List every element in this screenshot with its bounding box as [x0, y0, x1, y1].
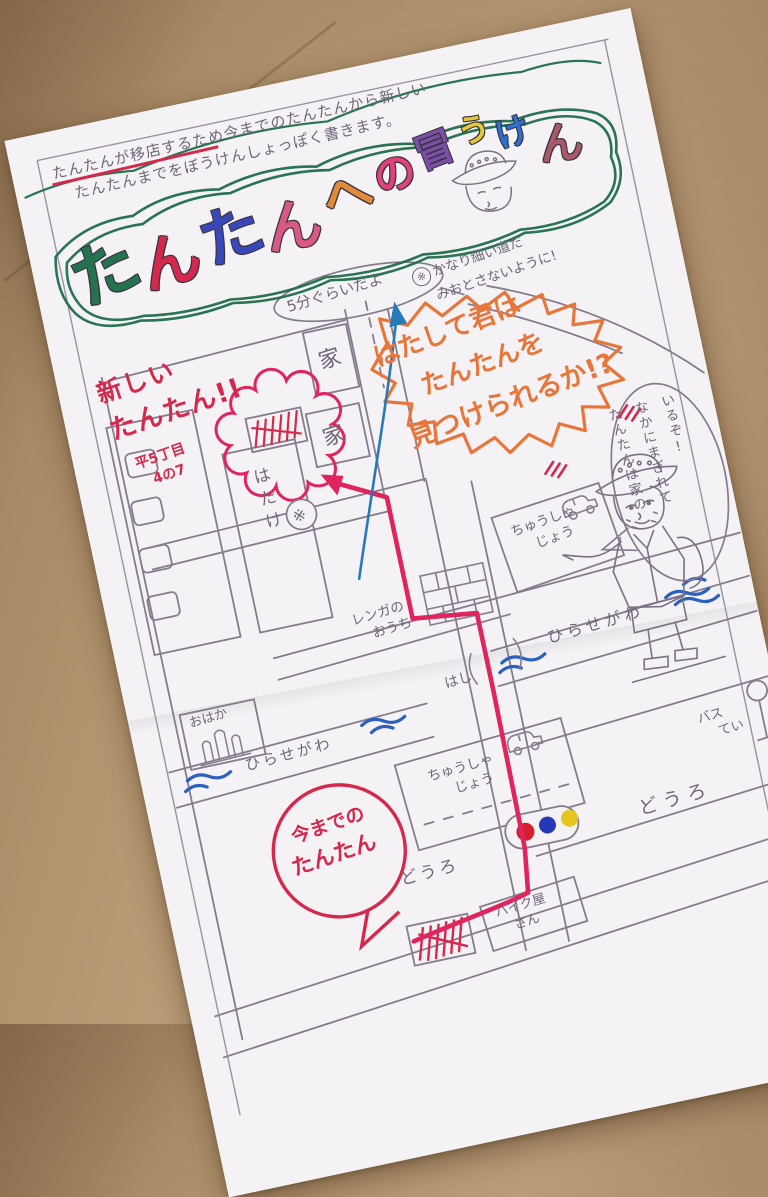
paper-sheet: たんたんが移店するため今までのたんたんから新しい たんたんまでをぼうけんしょっぽ… [4, 8, 768, 1197]
title-letter: ん [535, 105, 586, 174]
photo-of-hand-drawn-map: { "colors": { "cardboard": "#b2946f", "p… [0, 0, 768, 1024]
bus-stop-sign-icon [745, 679, 768, 741]
traffic-light-icon [502, 803, 582, 852]
